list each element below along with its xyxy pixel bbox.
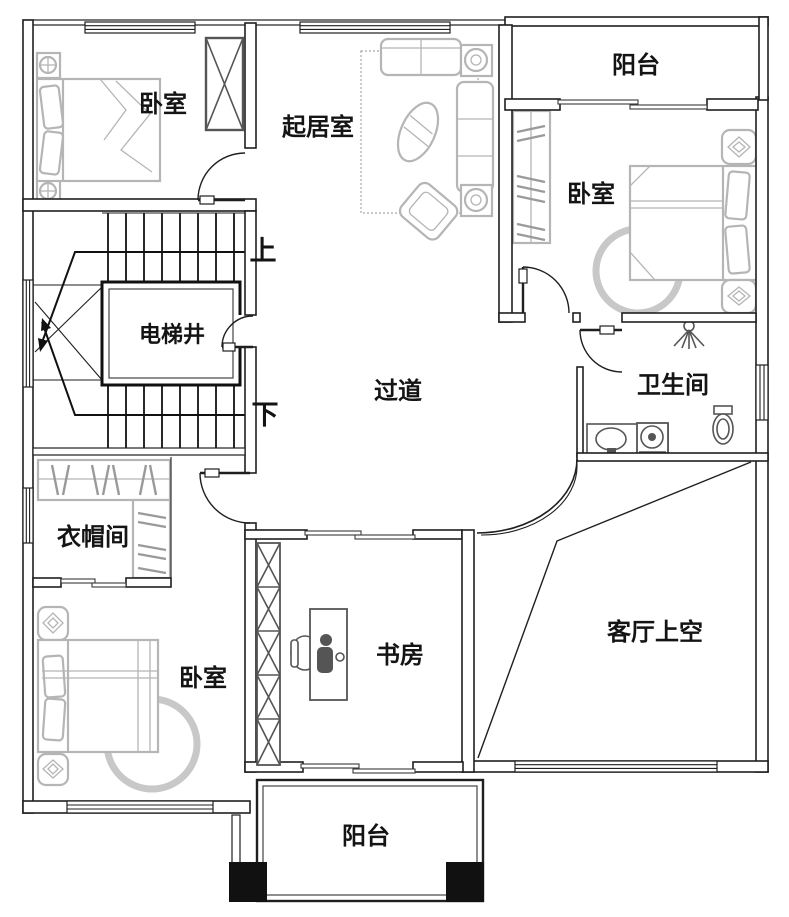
sliding-door-study-balcony xyxy=(301,764,415,773)
nightstand xyxy=(38,607,68,640)
window-void-bottom xyxy=(515,761,717,772)
cup-icon xyxy=(336,653,344,661)
curved-railing xyxy=(477,459,577,533)
room-label-elevator: 电梯井 xyxy=(139,322,205,348)
bookshelf xyxy=(257,543,280,765)
balcony-top-rail xyxy=(505,17,768,26)
window-bedroom-bl xyxy=(67,801,213,813)
floor-plan-page: 卧室 起居室 阳台 卧室 电梯井 过道 卫生间 衣帽间 卧室 书房 客厅上空 阳… xyxy=(0,0,789,917)
room-label-study: 书房 xyxy=(376,641,424,669)
chair-back xyxy=(291,640,298,667)
built-in-cabinet xyxy=(206,38,243,130)
balcony-bottom-left-jog xyxy=(232,815,240,863)
void-diagonal xyxy=(478,462,751,758)
sofa-set xyxy=(361,39,493,243)
person-icon xyxy=(317,647,333,673)
room-label-bathroom: 卫生间 xyxy=(637,371,709,399)
wall-stairs-bottom xyxy=(33,448,245,455)
wall-cloakroom-bottom-a xyxy=(33,578,61,587)
wall-study-right xyxy=(462,530,474,772)
room-label-balcony-top: 阳台 xyxy=(612,51,660,79)
room-label-bedroom-bl: 卧室 xyxy=(179,664,227,692)
sink xyxy=(596,428,626,450)
wall-hallway-west-c xyxy=(245,523,256,772)
room-label-bedroom-tl: 卧室 xyxy=(139,90,187,118)
balcony-column-right xyxy=(446,862,484,902)
sliding-door-study-top xyxy=(305,531,415,539)
room-label-hallway: 过道 xyxy=(374,377,422,405)
wall-cloakroom-bottom-b xyxy=(126,578,171,587)
wall-bathroom-top-b xyxy=(573,313,580,322)
nightstand xyxy=(38,754,68,785)
armchair xyxy=(397,180,461,243)
toilet-tank xyxy=(714,406,732,414)
window-livingroom xyxy=(300,22,450,33)
door-bedroom-bl xyxy=(200,469,250,523)
room-label-cloakroom: 衣帽间 xyxy=(57,523,129,551)
void-markings xyxy=(477,459,751,758)
bed-bottom-left xyxy=(38,607,197,789)
door-bedroom-tl xyxy=(198,153,245,204)
room-label-balcony-bottom: 阳台 xyxy=(342,822,390,850)
window-cloakroom-left xyxy=(23,488,33,543)
balcony-column-left xyxy=(229,862,267,902)
sliding-door-cloakroom xyxy=(61,579,126,587)
window-stairs-left xyxy=(23,280,33,387)
coffee-table xyxy=(390,97,446,167)
wall-study-top-a xyxy=(245,530,307,539)
wall-study-bottom-b xyxy=(413,762,463,772)
stair-up-label: 上 xyxy=(250,236,277,267)
wall-bathroom-bottom xyxy=(577,453,768,461)
bedroom-right-furniture xyxy=(513,111,757,313)
room-label-bedroom-tr: 卧室 xyxy=(567,180,615,208)
wardrobe xyxy=(133,500,170,578)
wall-bathroom-left xyxy=(577,367,583,457)
bed-top-left xyxy=(37,53,160,204)
window-bathroom-right xyxy=(756,365,768,420)
wall-bathroom-top-a xyxy=(499,313,525,322)
window-bedroom-tl xyxy=(85,22,195,33)
double-bed xyxy=(630,166,757,280)
person-icon xyxy=(320,634,332,646)
wall-bedroom-tr-top-a xyxy=(505,99,560,110)
wall-study-top-b xyxy=(413,530,462,539)
floor-plan-canvas: 卧室 起居室 阳台 卧室 电梯井 过道 卫生间 衣帽间 卧室 书房 客厅上空 阳… xyxy=(0,0,789,917)
stair-down-label: 下 xyxy=(252,400,279,431)
study-furniture xyxy=(291,609,347,700)
room-label-living-room: 起居室 xyxy=(281,113,354,141)
door-bathroom xyxy=(580,326,622,372)
wall-bedroom-tr-top-b xyxy=(707,99,758,110)
wall-left xyxy=(23,20,33,813)
door-bedroom-tr xyxy=(519,267,569,313)
sliding-door-balcony-top xyxy=(558,100,707,109)
balcony-top-rail-right xyxy=(759,17,768,100)
curved-railing xyxy=(481,464,577,535)
wall-bathroom-top-c xyxy=(622,313,756,322)
cloakroom-wardrobes xyxy=(38,460,170,578)
room-label-void: 客厅上空 xyxy=(607,618,703,646)
wall-livingroom-bedroom xyxy=(499,25,512,322)
sofa-three-seat xyxy=(457,82,493,192)
wall-bedroom-tl-right xyxy=(245,23,256,148)
nightstand xyxy=(722,280,756,313)
wall-right xyxy=(756,97,768,772)
